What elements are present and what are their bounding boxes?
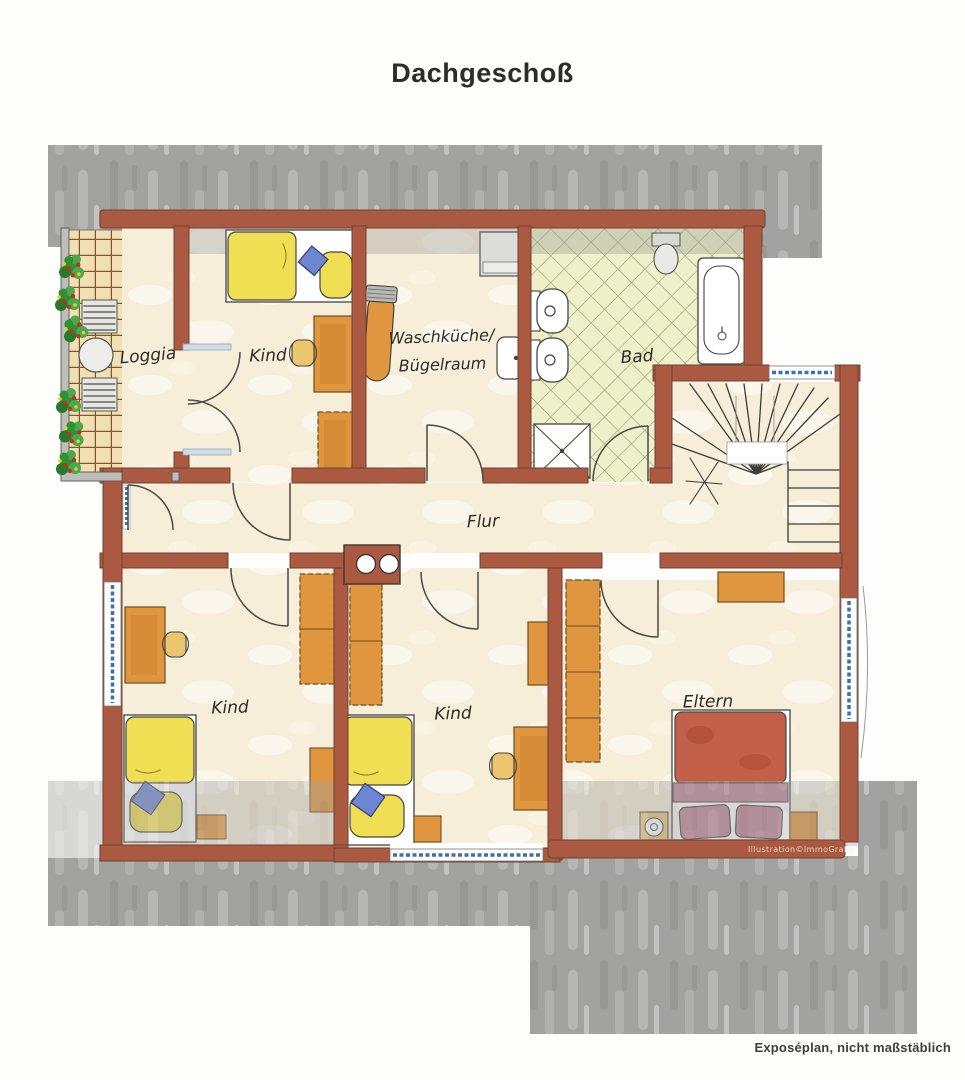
chair-kind-nw xyxy=(290,340,317,366)
window-stair xyxy=(769,366,835,379)
caption: Exposéplan, nicht maßstäblich xyxy=(754,1040,951,1055)
wc xyxy=(530,289,568,333)
chimney-flue xyxy=(357,555,376,574)
page-title: Dachgeschoß xyxy=(0,58,965,89)
room-label-waschkueche: Waschküche/ Bügelraum xyxy=(388,321,495,381)
room-label-kind-sw: Kind xyxy=(211,697,249,718)
chimney-flue xyxy=(380,555,399,574)
bed-kind-nw xyxy=(226,230,354,302)
dresser-eltern xyxy=(718,572,784,602)
floorplan-canvas: Dachgeschoß Loggia Kind Waschküche/ Büge… xyxy=(0,0,965,1080)
wardrobe-eltern xyxy=(566,580,600,762)
radiator-flur xyxy=(123,485,130,529)
pencil-swing-line xyxy=(861,586,868,758)
bed-kind-s xyxy=(342,715,414,845)
french-door-jamb xyxy=(183,344,231,350)
room-label-bad: Bad xyxy=(620,346,654,368)
sun-lounger xyxy=(82,378,117,411)
watermark: Illustration©ImmoGrafik xyxy=(748,845,855,854)
room-label-flur: Flur xyxy=(467,511,500,532)
room-label-kind-s: Kind xyxy=(434,703,472,724)
room-label-waschkueche-line2: Bügelraum xyxy=(389,349,496,381)
room-label-waschkueche-line1: Waschküche/ xyxy=(388,321,495,353)
room-label-kind-nw: Kind xyxy=(249,345,287,366)
window-kind-s xyxy=(390,843,543,861)
round-table xyxy=(79,338,113,372)
window-west xyxy=(104,582,121,706)
nightstand-kind-s xyxy=(414,816,441,842)
sun-lounger xyxy=(82,300,117,333)
chair-kind-s xyxy=(490,753,517,779)
french-door-jamb xyxy=(183,449,231,455)
chair-kind-sw xyxy=(163,632,189,657)
bidet xyxy=(530,338,568,382)
bathtub xyxy=(698,258,745,364)
window-eltern xyxy=(841,598,857,722)
room-label-eltern: Eltern xyxy=(683,692,734,713)
floorplan-drawing xyxy=(0,0,965,1080)
toilet-top xyxy=(652,233,680,274)
washing-machine xyxy=(480,232,523,276)
